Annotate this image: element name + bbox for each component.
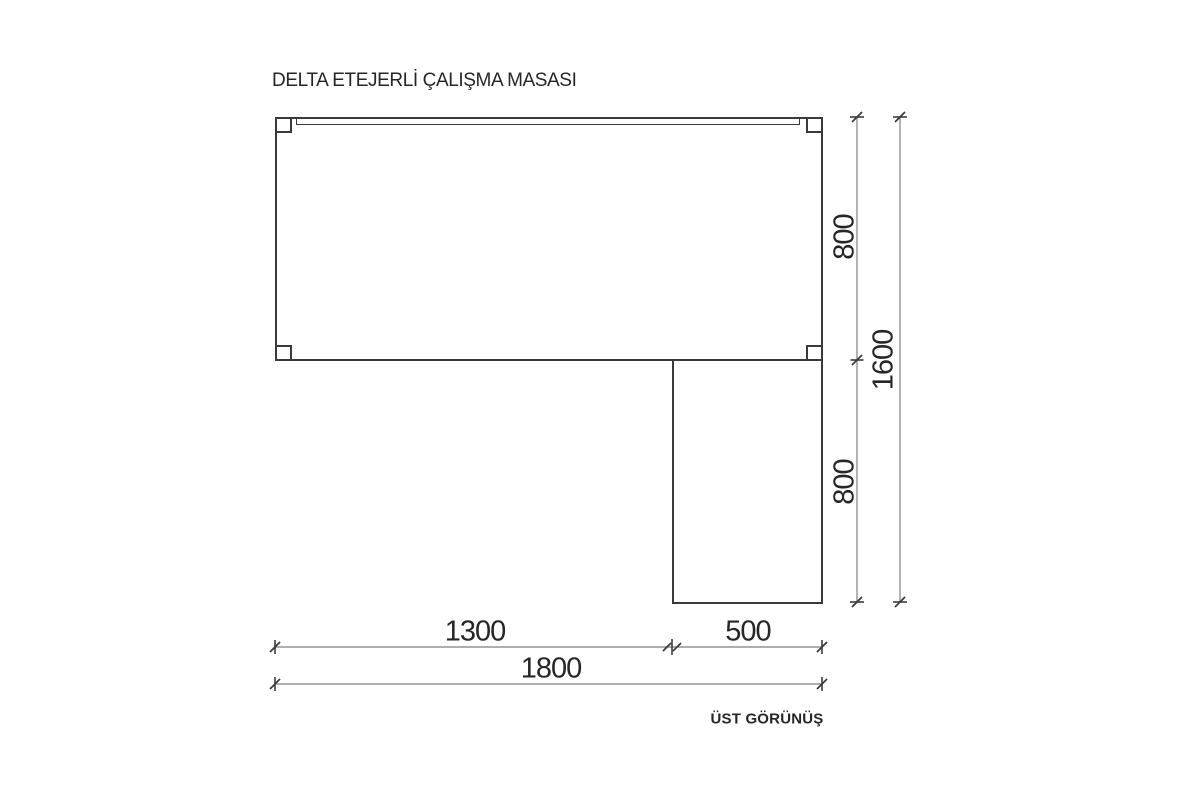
dim-label-right-lower: 800 bbox=[829, 459, 862, 504]
dim-label-bottom-total: 1800 bbox=[521, 653, 582, 686]
dim-label-bottom-return: 500 bbox=[725, 616, 770, 649]
desk-leg-top-left bbox=[275, 117, 292, 133]
desk-back-edge-strip bbox=[296, 118, 800, 125]
view-label: ÜST GÖRÜNÜŞ bbox=[710, 711, 823, 728]
dim-label-bottom-main: 1300 bbox=[445, 616, 506, 649]
desk-leg-bottom-left bbox=[275, 345, 292, 361]
desk-main-surface bbox=[275, 117, 823, 361]
dim-line-right-segments bbox=[850, 112, 864, 607]
drawing-title: DELTA ETEJERLİ ÇALIŞMA MASASI bbox=[272, 70, 576, 92]
desk-leg-top-right bbox=[806, 117, 823, 133]
technical-drawing-canvas: DELTA ETEJERLİ ÇALIŞMA MASASI bbox=[0, 0, 1200, 800]
dim-label-right-total: 1600 bbox=[868, 330, 901, 391]
desk-return-surface bbox=[672, 359, 823, 604]
dim-label-right-upper: 800 bbox=[829, 214, 862, 259]
